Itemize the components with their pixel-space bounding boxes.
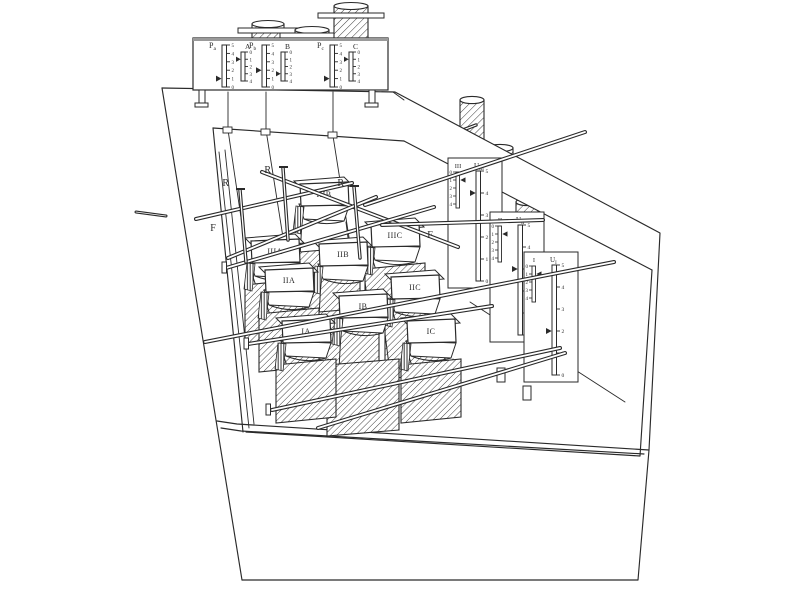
hopper-label: IIA <box>283 276 295 285</box>
bushing-top-cap <box>334 3 368 10</box>
bushing-crossbar <box>318 13 384 18</box>
inner-back-rim <box>213 128 404 141</box>
tick-number: 5 <box>562 263 565 269</box>
hopper-prism <box>276 359 336 423</box>
tank-diagram: Pa543210A01234Pb543210B01234Pc543210C012… <box>0 0 810 591</box>
meter-phase-bar <box>281 52 285 81</box>
hopper-IC: IC <box>400 314 461 423</box>
rail-post <box>222 262 227 273</box>
hopper-array: IIIBIIIAIIICIIBIIAIICIBIAIC <box>244 177 461 436</box>
feed-rod-label: F <box>427 230 433 241</box>
front-wall-top-outer <box>217 421 649 450</box>
hopper-prism <box>401 359 461 423</box>
outer-left-edge <box>162 88 242 580</box>
bushing-crossbar <box>238 28 298 33</box>
row-bar <box>498 226 502 262</box>
row-label: III <box>455 163 462 170</box>
meter-main-bar <box>262 45 267 87</box>
row-label: I <box>533 257 535 264</box>
meter-main-bar <box>222 45 227 87</box>
control-panel: Pa543210A01234Pb543210B01234Pc543210C012… <box>193 38 404 107</box>
hopper-label: IIC <box>409 283 421 292</box>
diagram-canvas: Pa543210A01234Pb543210B01234Pc543210C012… <box>0 0 810 591</box>
hopper-label: IIIC <box>388 231 403 240</box>
release-rod-label: R <box>337 178 344 189</box>
row-bar <box>532 266 536 302</box>
tick-number: 4 <box>486 191 489 197</box>
bin-band <box>370 245 420 262</box>
bushing-top-cap <box>252 21 284 28</box>
meter-phase-bar <box>241 52 245 81</box>
meter-main-sub: b <box>253 46 256 52</box>
release-rod-label: R <box>264 165 271 176</box>
wire-connector <box>261 129 270 135</box>
u-bar <box>476 171 481 281</box>
rail-post <box>244 338 249 349</box>
meter-phase-label: C <box>353 42 358 51</box>
hopper-label: IIB <box>337 250 349 259</box>
panel-foot <box>195 103 208 107</box>
rail-post <box>266 404 271 415</box>
tick-number: 1 <box>486 257 489 263</box>
feed-rod-label: F <box>210 223 216 234</box>
meter-phase-bar <box>349 52 353 81</box>
bin-band <box>406 341 456 358</box>
tick-number: 5 <box>486 169 489 175</box>
wall-tab <box>523 386 531 400</box>
outer-right-front-edge <box>638 450 649 580</box>
tick-number: 3 <box>562 307 565 313</box>
meter-phase-label: B <box>285 42 290 51</box>
tick-number: 0 <box>562 373 565 379</box>
tick-number: 5 <box>528 223 531 229</box>
wire-connector <box>223 127 232 133</box>
front-wall-top-inner <box>221 428 644 454</box>
tick-number: 4 <box>528 245 531 251</box>
tick-number: 0 <box>486 279 489 285</box>
release-rod-label: R <box>222 178 229 189</box>
hopper-label: IC <box>427 327 436 336</box>
tick-number: 4 <box>562 285 565 291</box>
tick-number: 3 <box>486 213 489 219</box>
tick-number: 2 <box>562 329 565 335</box>
row-bar <box>456 172 460 208</box>
bushing-top-cap <box>295 27 329 34</box>
inner-front-rim <box>246 432 640 456</box>
meter-main-bar <box>330 45 335 87</box>
bin-band <box>318 264 368 281</box>
tick-number: 2 <box>486 235 489 241</box>
bin-band <box>281 341 331 358</box>
panel-foot <box>365 103 378 107</box>
wire-connector <box>328 132 337 138</box>
bin-band <box>264 290 314 307</box>
bushing-right-top <box>460 96 484 103</box>
